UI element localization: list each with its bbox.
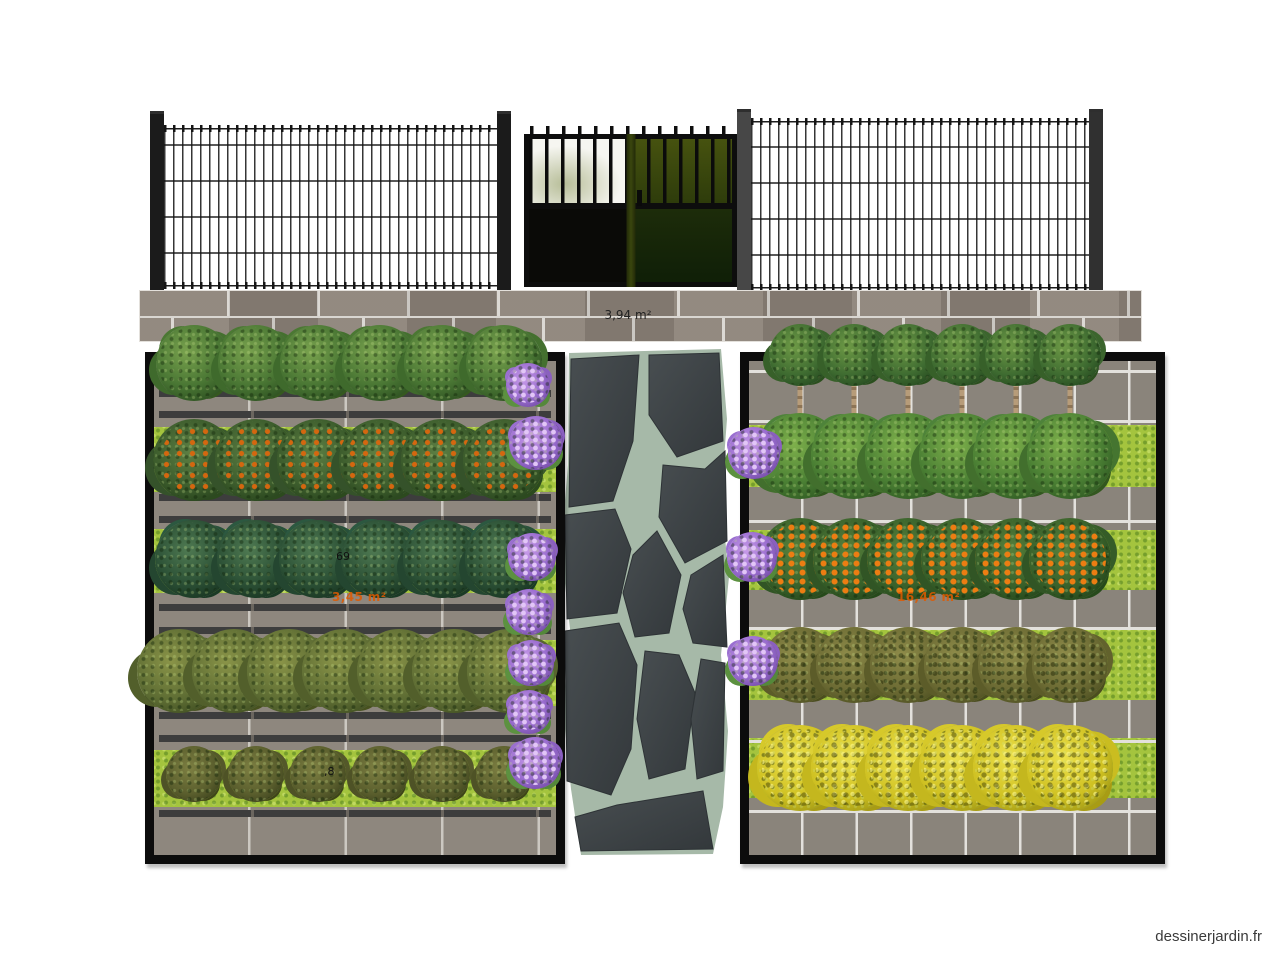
plant-tree-std [823,324,885,386]
gate-handle [637,190,642,206]
canopy [166,746,222,802]
espalier-rail [159,411,551,418]
flower-purple [506,589,552,635]
plant-shrub-brown [1032,627,1108,703]
plant-tree-small [352,746,408,802]
watermark: dessinerjardin.fr [1155,928,1262,945]
canopy [352,746,408,802]
flower-purple [727,532,777,582]
plant-count-label: 69 [336,551,350,562]
plant-tree-std [1039,324,1101,386]
flagstone-svg [555,349,733,856]
right-garden-plot: 16,46 m² [740,352,1165,864]
canopy [507,690,551,734]
fence-post [1089,109,1103,298]
flower-purple [507,690,551,734]
canopy [290,746,346,802]
fence-post [497,111,511,298]
gate-frame [524,134,737,287]
gate-panel [529,209,631,282]
canopy [1027,725,1113,811]
gate-leaf-left [529,139,631,282]
plant-tree-small [414,746,470,802]
stone-path [555,349,733,856]
canopy [506,363,550,407]
canopy [228,746,284,802]
measure-fragment-label: ,8 [324,766,335,777]
garden-gate [524,126,737,289]
canopy [506,589,552,635]
espalier-rail [159,712,551,719]
espalier-rail [159,735,551,742]
fence-post [150,111,164,298]
canopy [414,746,470,802]
plant-tree-small [166,746,222,802]
fence-post [737,109,751,298]
espalier-rail [159,810,551,817]
flower-purple [508,640,554,686]
plant-tree-std [931,324,993,386]
canopy [1027,413,1113,499]
flower-purple [506,363,550,407]
canopy [1039,324,1101,386]
plot-interior: 693,45 m²,8 [154,361,556,855]
canopy [877,324,939,386]
plant-tree-std [985,324,1047,386]
plant-tree-small [290,746,346,802]
canopy [1029,518,1111,600]
garden-plan-canvas: 3,94 m² dessinerjardin.fr 693,45 m²,816, [0,0,1280,960]
canopy [509,416,563,470]
espalier-rail [159,604,551,611]
walkway-area-label: 3,94 m² [604,308,651,322]
plant-tree-std [769,324,831,386]
flower-purple [508,533,556,581]
flower-purple [728,427,780,479]
canopy [727,532,777,582]
plant-tree-orange [1029,518,1111,600]
gate-panel [631,209,733,282]
gate-bars [631,139,733,203]
canopy [823,324,885,386]
fence-panel-right [751,119,1089,290]
flower-purple [728,636,778,686]
plot-interior: 16,46 m² [749,361,1156,855]
flower-purple [509,737,561,789]
plant-tree-round [1027,413,1113,499]
canopy [769,324,831,386]
gate-leaf-right [631,139,733,282]
canopy [728,427,780,479]
canopy [1032,627,1108,703]
plant-shrub-yellow [1027,725,1113,811]
canopy [509,737,561,789]
gate-center-stile [626,134,635,287]
canopy [508,533,556,581]
canopy [931,324,993,386]
canopy [985,324,1047,386]
left-garden-plot: 693,45 m²,8 [145,352,565,864]
plant-tree-std [877,324,939,386]
fence-panel-left [164,126,497,288]
bed-area-label: 16,46 m² [897,591,960,603]
canopy [508,640,554,686]
flower-purple [509,416,563,470]
gate-bars [529,139,631,203]
canopy [728,636,778,686]
bed-area-label: 3,45 m² [332,591,386,603]
plant-tree-small [228,746,284,802]
